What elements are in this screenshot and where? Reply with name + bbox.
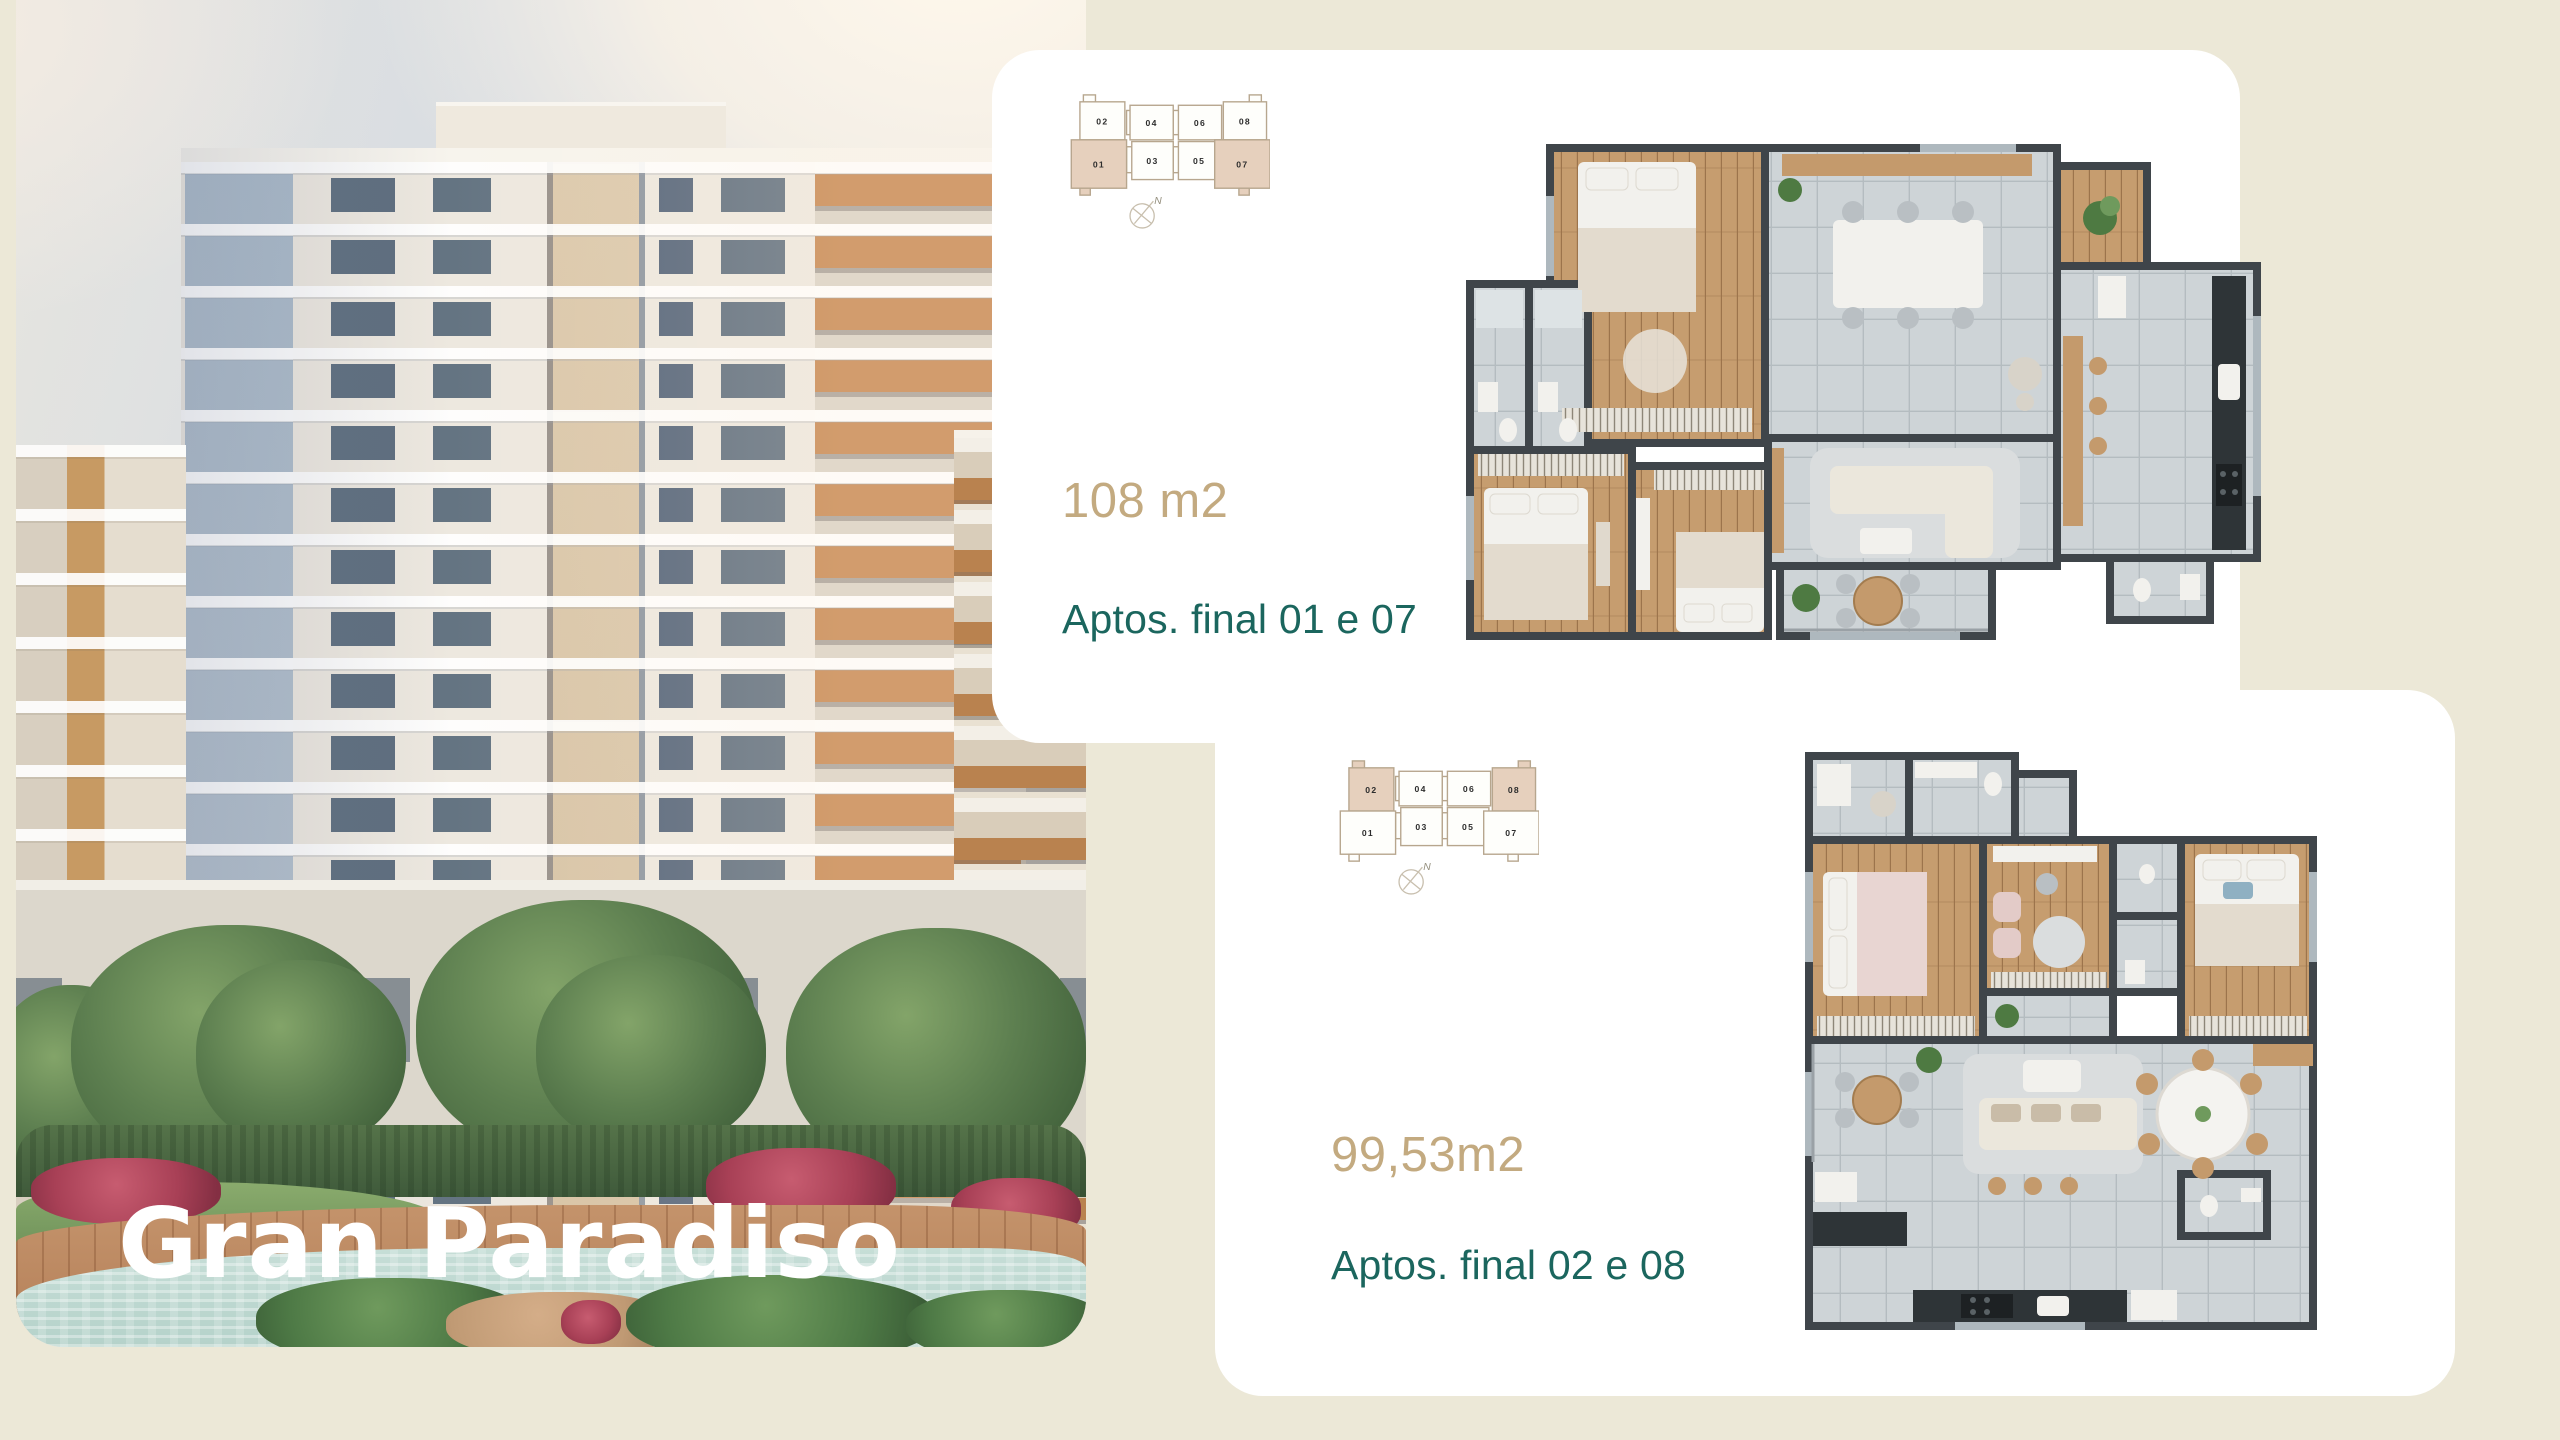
svg-text:N: N — [1154, 196, 1162, 207]
unit-area-label: 108 m2 — [1062, 473, 1228, 529]
unit-number: 03 — [1146, 156, 1158, 166]
compass-rose-icon: N — [1399, 862, 1431, 894]
apartments-label: Aptos. final 02 e 08 — [1331, 1242, 1686, 1289]
key-plan-diagram-2: 02 04 06 08 01 03 05 07 N — [1323, 754, 1539, 905]
floor-plan-image-99m2 — [1795, 742, 2329, 1346]
project-title: Gran Paradiso — [118, 1187, 901, 1300]
unit-number: 07 — [1505, 828, 1517, 838]
unit-number: 02 — [1365, 785, 1377, 795]
foreground-plants — [906, 1290, 1086, 1347]
floor-plan-image-108m2 — [1450, 136, 2302, 644]
unit-number: 05 — [1462, 822, 1474, 832]
building-render-photo: Gran Paradiso — [16, 0, 1086, 1347]
page: Gran Paradiso 02 — [0, 0, 2560, 1440]
tree — [536, 955, 766, 1150]
apartments-label: Aptos. final 01 e 07 — [1062, 596, 1417, 643]
unit-number: 01 — [1093, 159, 1105, 169]
key-plan-diagram-1: 02 04 06 08 01 03 05 07 N — [1054, 88, 1270, 239]
red-accent-plant — [561, 1300, 621, 1344]
unit-number: 02 — [1096, 116, 1108, 126]
unit-number: 01 — [1362, 828, 1374, 838]
svg-text:N: N — [1423, 862, 1431, 873]
unit-number: 04 — [1146, 118, 1158, 128]
unit-number: 07 — [1236, 159, 1248, 169]
floorplan-card-99m2: 02 04 06 08 01 03 05 07 N 99,53m2 Aptos.… — [1215, 690, 2455, 1396]
unit-number: 08 — [1239, 116, 1251, 126]
unit-number: 05 — [1193, 156, 1205, 166]
compass-rose-icon: N — [1130, 196, 1162, 228]
unit-number: 08 — [1508, 785, 1520, 795]
rooftop-structure — [436, 102, 726, 154]
unit-number: 06 — [1463, 784, 1475, 794]
tree — [196, 960, 406, 1150]
unit-number: 04 — [1415, 784, 1427, 794]
floorplan-card-108m2: 02 04 06 08 01 03 05 07 N 108 m2 Aptos. … — [992, 50, 2240, 743]
unit-area-label: 99,53m2 — [1331, 1127, 1525, 1183]
unit-number: 03 — [1415, 822, 1427, 832]
unit-number: 06 — [1194, 118, 1206, 128]
